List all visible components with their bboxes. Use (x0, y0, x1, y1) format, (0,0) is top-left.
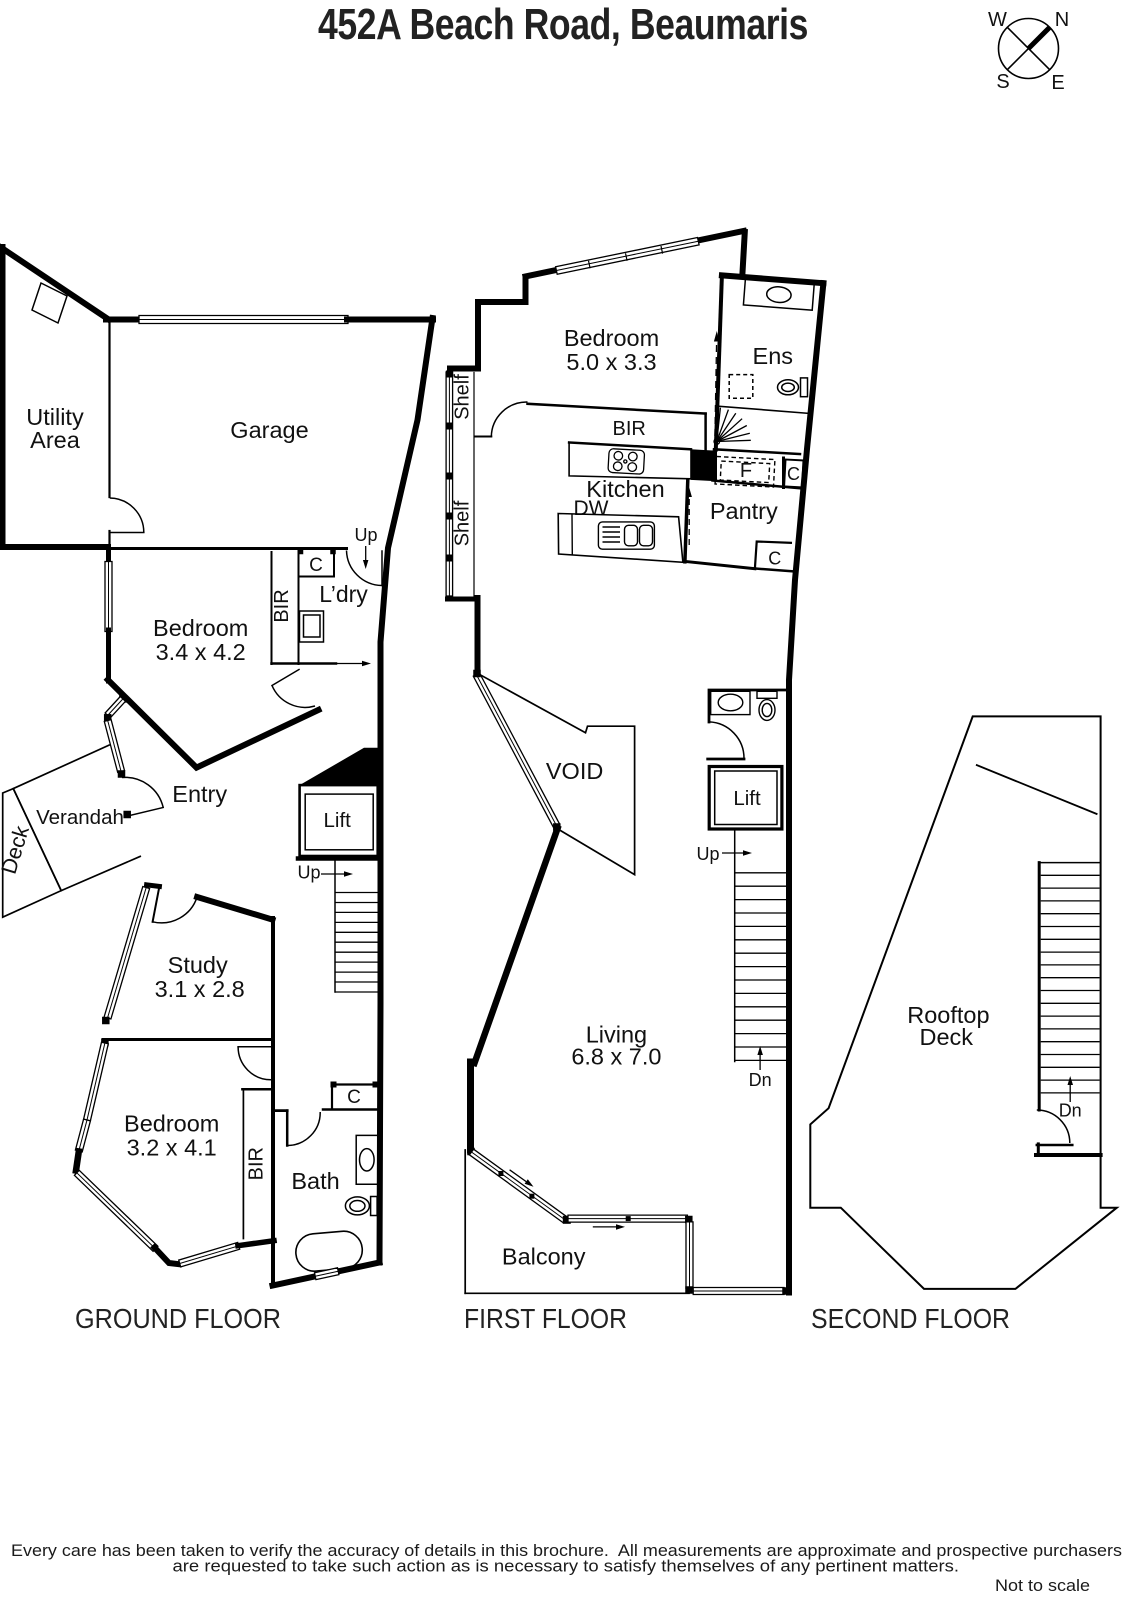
svg-text:Lift: Lift (324, 809, 352, 832)
svg-text:6.8 x 7.0: 6.8 x 7.0 (571, 1044, 661, 1070)
svg-text:VOID: VOID (546, 758, 603, 784)
svg-text:SECOND FLOOR: SECOND FLOOR (811, 1303, 1010, 1334)
svg-text:DW: DW (574, 497, 609, 520)
svg-text:Study: Study (168, 952, 228, 978)
svg-text:Balcony: Balcony (502, 1244, 586, 1270)
svg-text:5.0 x 3.3: 5.0 x 3.3 (566, 349, 656, 375)
svg-text:E: E (1051, 72, 1064, 94)
svg-text:BIR: BIR (271, 589, 293, 622)
svg-text:FIRST FLOOR: FIRST FLOOR (464, 1303, 627, 1334)
svg-text:C: C (768, 549, 781, 569)
svg-text:F: F (740, 460, 752, 482)
svg-text:Entry: Entry (172, 781, 227, 807)
svg-text:3.2 x 4.1: 3.2 x 4.1 (127, 1135, 217, 1161)
svg-text:Area: Area (30, 427, 81, 453)
svg-text:L’dry: L’dry (319, 581, 368, 607)
svg-text:BIR: BIR (613, 418, 646, 440)
svg-text:C: C (347, 1087, 361, 1108)
svg-text:Deck: Deck (920, 1024, 974, 1050)
svg-text:C: C (787, 464, 800, 484)
svg-text:Bedroom: Bedroom (153, 615, 248, 641)
svg-text:Dn: Dn (1059, 1101, 1082, 1121)
svg-text:Dn: Dn (749, 1070, 772, 1090)
svg-text:N: N (1055, 9, 1069, 31)
svg-text:Garage: Garage (230, 417, 308, 443)
svg-text:3.1 x 2.8: 3.1 x 2.8 (155, 976, 245, 1002)
svg-text:Shelf: Shelf (452, 500, 474, 546)
svg-text:are requested to take such act: are requested to take such action as is … (173, 1558, 960, 1576)
svg-text:Bedroom: Bedroom (564, 325, 659, 351)
svg-text:Up: Up (696, 844, 719, 864)
svg-text:452A Beach Road, Beaumaris: 452A Beach Road, Beaumaris (318, 0, 808, 49)
svg-text:Up: Up (354, 525, 377, 545)
svg-text:Shelf: Shelf (452, 374, 474, 420)
svg-text:Not to scale: Not to scale (995, 1577, 1090, 1595)
svg-text:S: S (996, 71, 1009, 93)
svg-text:Up: Up (297, 863, 320, 883)
svg-text:Lift: Lift (733, 787, 761, 810)
svg-text:GROUND FLOOR: GROUND FLOOR (75, 1303, 281, 1334)
svg-text:Bath: Bath (291, 1168, 339, 1194)
svg-text:W: W (988, 9, 1007, 31)
svg-text:3.4 x 4.2: 3.4 x 4.2 (156, 639, 246, 665)
svg-text:Verandah: Verandah (36, 806, 124, 829)
svg-text:BIR: BIR (246, 1147, 268, 1180)
svg-text:C: C (309, 555, 323, 576)
svg-text:Pantry: Pantry (710, 498, 778, 524)
svg-text:Ens: Ens (753, 343, 794, 369)
svg-text:Bedroom: Bedroom (124, 1111, 219, 1137)
